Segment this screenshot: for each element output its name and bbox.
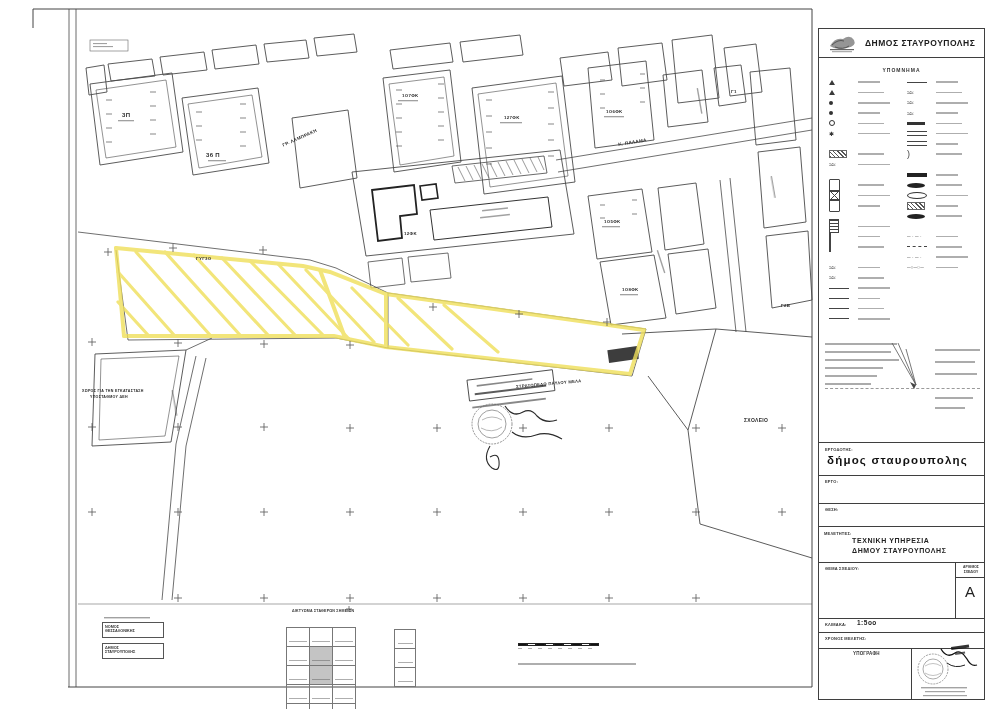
scale-caption-illegible [518, 651, 658, 669]
sp-icon [907, 222, 931, 231]
road-icon [907, 139, 931, 148]
legend-item [829, 242, 905, 252]
hatch-icon [907, 201, 931, 210]
circ-icon [829, 119, 853, 128]
legend-item [829, 87, 905, 97]
designers-label: ΜΕΛΕΤΗΤΕΣ: [824, 531, 852, 536]
location-label: ΘΕΣΗ: [825, 507, 838, 512]
coordinates-table [286, 627, 356, 709]
legend-item [829, 314, 905, 324]
legend-label-illegible [858, 205, 880, 207]
legend-item [829, 293, 905, 303]
lensf-icon [907, 181, 931, 190]
footer-box-prefecture: ΝΟΜΟΣ ΘΕΣΣΑΛΟΝΙΚΗΣ [102, 622, 164, 638]
excl-icon [829, 232, 853, 241]
legend-item [829, 252, 905, 262]
legend-item [907, 262, 983, 272]
legend-item [907, 87, 983, 97]
legend-item [829, 139, 905, 149]
legend-label-illegible [858, 184, 884, 186]
dash-icon [907, 242, 931, 251]
wavy-icon [907, 109, 931, 118]
legend-label-illegible [936, 215, 962, 217]
legend-label-illegible [936, 184, 962, 186]
legend-item [829, 118, 905, 128]
legend-label-illegible [858, 226, 890, 228]
legend-item [907, 242, 983, 252]
designer-line2: ΔΗΜΟΥ ΣΤΑΥΡΟΥΠΟΛΗΣ [852, 547, 946, 554]
legend-label-illegible [858, 277, 884, 279]
legend-label-illegible [858, 133, 890, 135]
sp-icon [829, 139, 853, 148]
circf-icon [829, 98, 853, 107]
legend-label-illegible [858, 123, 884, 125]
municipality-line2: ΣΤΑΥΡΟΥΠΟΛΗΣ [105, 650, 161, 655]
legend-label-illegible [936, 267, 958, 269]
legend-label-illegible [936, 133, 968, 135]
substation-parcel [92, 338, 212, 446]
legend-item [907, 108, 983, 118]
legend-label-illegible [858, 246, 884, 248]
scale-value: 1:5οο [857, 619, 877, 626]
legend-label-illegible [858, 102, 890, 104]
legend-item [907, 211, 983, 221]
bottom-right-parcel [622, 329, 812, 558]
legend-label-illegible [936, 256, 968, 258]
legend-item [907, 221, 983, 231]
legend-label-illegible [858, 112, 880, 114]
graphic-scale-bar [518, 643, 658, 669]
legend-label-illegible [858, 153, 884, 155]
doc-icon [829, 181, 853, 190]
excl-icon [829, 242, 853, 251]
legend-item [829, 170, 905, 180]
sp-icon [829, 170, 853, 179]
legend-item [829, 180, 905, 190]
line-icon [907, 78, 931, 87]
tri-icon [829, 88, 853, 97]
legend-item [829, 262, 905, 272]
legend-item [907, 128, 983, 138]
legend-item [829, 149, 905, 159]
legend-label-illegible [936, 81, 958, 83]
wavy-icon [829, 273, 853, 282]
legend-item [907, 231, 983, 241]
doc-icon [829, 201, 853, 210]
compound [352, 150, 574, 288]
title-block: ΕΡΓΟΔΟΤΗΣ: δήμος σταυρουπολης ΕΡΓΟ: ΘΕΣΗ… [819, 442, 984, 699]
legend-label-illegible [936, 195, 968, 197]
legend-label-illegible [858, 81, 880, 83]
tri-icon [829, 78, 853, 87]
streets [78, 118, 812, 600]
municipality-logo-icon [827, 33, 857, 53]
legend-item [829, 98, 905, 108]
legend-item [907, 159, 983, 169]
title-block-panel: ΔΗΜΟΣ ΣΤΑΥΡΟΥΠΟΛΗΣ ΥΠΟΜΝΗΜΑ [818, 28, 985, 700]
scale-segments [518, 643, 658, 646]
hatch-icon [829, 150, 853, 159]
legend-item [907, 180, 983, 190]
lensf-icon [907, 212, 931, 221]
legend-column-right [907, 77, 983, 273]
wavy-icon [907, 88, 931, 97]
study-time-label: ΧΡΟΝΟΣ ΜΕΛΕΤΗΣ: [825, 636, 866, 641]
lens-icon [907, 191, 931, 200]
line-icon [829, 314, 853, 323]
notes-block [823, 341, 982, 439]
secondary-table [394, 629, 416, 687]
road-icon [907, 129, 931, 138]
footer-box-municipality: ΔΗΜΟΣ ΣΤΑΥΡΟΥΠΟΛΗΣ [102, 643, 164, 659]
sheet-frame [33, 9, 812, 687]
legend-item [907, 201, 983, 211]
brace-icon [907, 150, 931, 159]
legend-item [829, 283, 905, 293]
legend-label-illegible [936, 123, 962, 125]
stack-icon [829, 222, 853, 231]
dashdot-icon [907, 232, 931, 241]
circf-icon [829, 109, 853, 118]
legend-item [907, 98, 983, 108]
legend-column-left [829, 77, 905, 324]
legend-item [907, 252, 983, 262]
legend-item [829, 221, 905, 231]
legend-label-illegible [858, 318, 890, 320]
legend-label-illegible [936, 143, 958, 145]
legend-label-illegible [858, 92, 884, 94]
number-cell-underline [955, 577, 984, 578]
legend-title: ΥΠΟΜΝΗΜΑ [819, 67, 984, 73]
wavy-icon [829, 263, 853, 272]
legend-item [907, 170, 983, 180]
legend-item [829, 201, 905, 211]
drawing-number-label-line1: ΑΡΙΘΜΟΣ [956, 565, 986, 569]
legend-item [907, 149, 983, 159]
legend-label-illegible [858, 195, 890, 197]
legend-label-illegible [858, 236, 880, 238]
client-label: ΕΡΓΟΔΟΤΗΣ: [825, 447, 853, 452]
legend-label-illegible [936, 102, 968, 104]
prefecture-line2: ΘΕΣΣΑΛΟΝΙΚΗΣ [105, 629, 161, 634]
legend-label-illegible [858, 267, 880, 269]
line-icon [829, 304, 853, 313]
legend-label-illegible [936, 174, 958, 176]
scale-label: ΚΛΙΜΑΚΑ: [825, 622, 847, 627]
ast-icon [829, 129, 853, 138]
designer-line1: ΤΕΧΝΙΚΗ ΥΠΗΡΕΣΙΑ [852, 537, 929, 544]
legend-item [829, 211, 905, 221]
sp-icon [907, 160, 931, 169]
legend-item [829, 190, 905, 200]
reference-box [90, 40, 128, 51]
legend-label-illegible [858, 164, 890, 166]
legend-label-illegible [858, 298, 880, 300]
line-icon [829, 294, 853, 303]
panel-municipality-title: ΔΗΜΟΣ ΣΤΑΥΡΟΥΠΟΛΗΣ [865, 38, 975, 48]
approval-stamp [907, 643, 985, 701]
legend-label-illegible [936, 112, 958, 114]
legend-item [829, 231, 905, 241]
panel-header: ΔΗΜΟΣ ΣΤΑΥΡΟΥΠΟΛΗΣ [819, 29, 984, 58]
legend-label-illegible [936, 205, 958, 207]
highlight-zone [116, 248, 644, 374]
legend-item [829, 108, 905, 118]
camp-stamp [472, 404, 562, 469]
wavy-icon [829, 160, 853, 169]
drawing-number-label-line2: ΣΧΕΔΙΟΥ [956, 570, 986, 574]
signature-label: ΥΠΟΓΡΑΦΗ [853, 651, 880, 656]
scale-numbers-illegible [518, 648, 658, 649]
project-label: ΕΡΓΟ: [825, 479, 838, 484]
legend-item [907, 190, 983, 200]
legend-item [907, 118, 983, 128]
legend-label-illegible [858, 308, 884, 310]
legend-label-illegible [936, 246, 962, 248]
bar-icon [907, 119, 931, 128]
client-name: δήμος σταυρουπολης [827, 454, 968, 466]
wavy-icon [907, 98, 931, 107]
drawing-sheet: ΓΡ. ΛΑΜΠΡΑΚΗ Κ. ΠΑΛΑΜΑ ΣΧΟΛΕΙΟ ΣΤΡΑΤΟΠΕΔ… [0, 0, 997, 709]
legend-label-illegible [936, 153, 962, 155]
legend-item [829, 159, 905, 169]
legend-item [907, 139, 983, 149]
legend-item [829, 128, 905, 138]
legend-item [907, 77, 983, 87]
subject-label: ΘΕΜΑ ΣΧΕΔΙΟΥ: [825, 566, 859, 571]
dashcirc-icon [907, 263, 931, 272]
sp-icon [829, 253, 853, 262]
legend-item [829, 77, 905, 87]
legend-item [829, 273, 905, 283]
coords-table-caption: ΔΙΚΤΥΩΜΑ ΣΤΑΘΕΡΩΝ ΣΗΜΕΙΩΝ [292, 609, 354, 613]
legend-label-illegible [936, 236, 958, 238]
line-icon [829, 284, 853, 293]
barf-icon [907, 170, 931, 179]
legend-label-illegible [858, 287, 890, 289]
annotation-box [467, 370, 556, 409]
legend-item [829, 304, 905, 314]
drawing-number: A [965, 583, 975, 600]
legend-label-illegible [936, 92, 962, 94]
dashdot-icon [907, 253, 931, 262]
north-arrow-icon [886, 341, 932, 397]
city-blocks [86, 34, 812, 325]
